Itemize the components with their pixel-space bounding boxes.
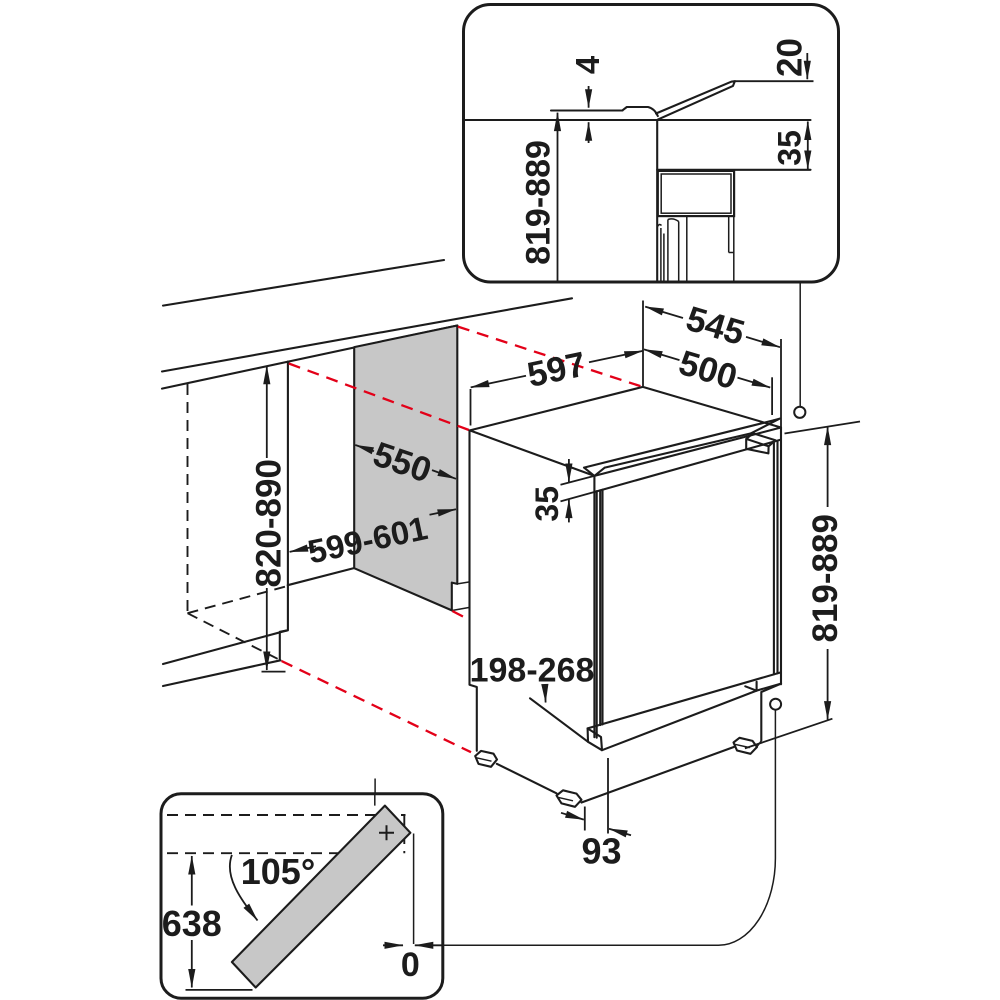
svg-text:819-889: 819-889: [520, 140, 558, 265]
svg-text:819-889: 819-889: [806, 514, 845, 642]
svg-text:105°: 105°: [241, 851, 315, 892]
svg-text:198-268: 198-268: [470, 652, 595, 690]
svg-text:638: 638: [162, 903, 222, 944]
svg-text:820-890: 820-890: [250, 459, 289, 587]
svg-text:35: 35: [772, 130, 808, 166]
svg-text:4: 4: [569, 55, 606, 74]
svg-text:93: 93: [581, 831, 621, 872]
svg-text:0: 0: [401, 946, 420, 984]
svg-text:20: 20: [771, 38, 810, 77]
svg-text:35: 35: [529, 486, 565, 522]
